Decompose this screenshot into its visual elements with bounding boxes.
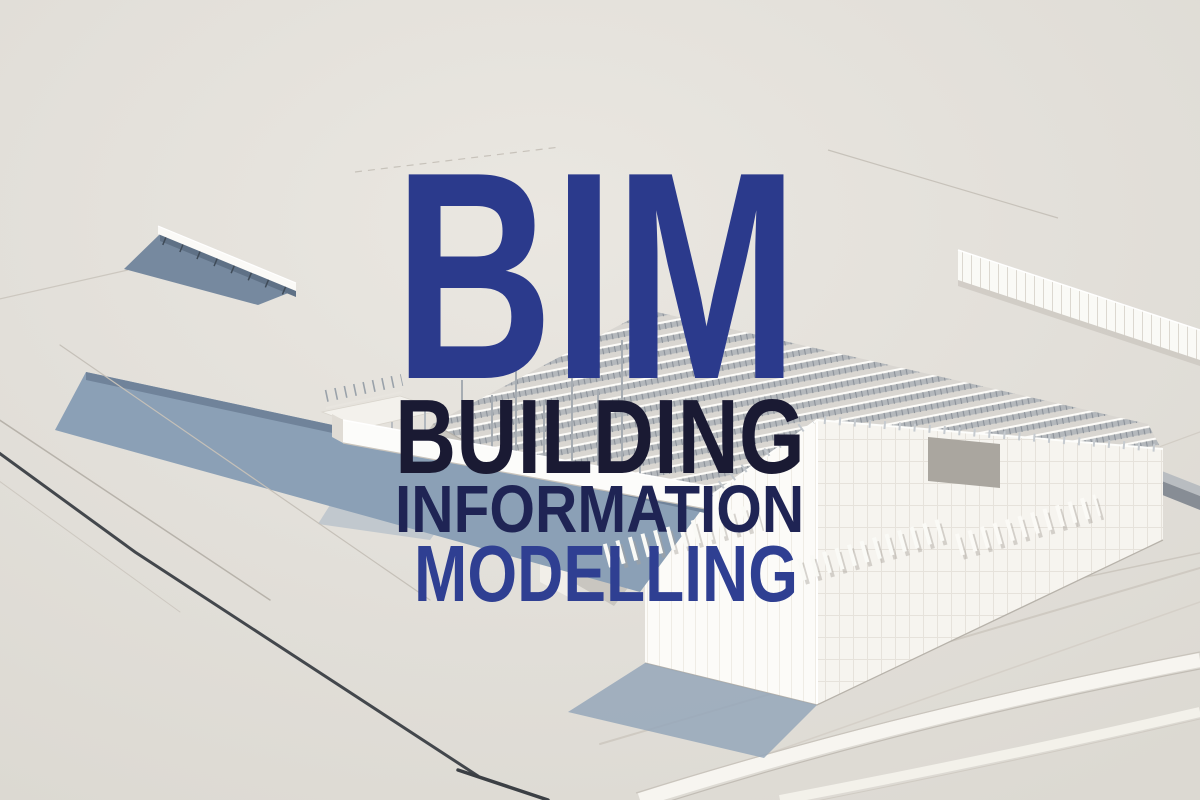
architectural-model-render [0, 0, 1200, 800]
bim-hero-banner: BIM BUILDING INFORMATION MODELLING [0, 0, 1200, 800]
